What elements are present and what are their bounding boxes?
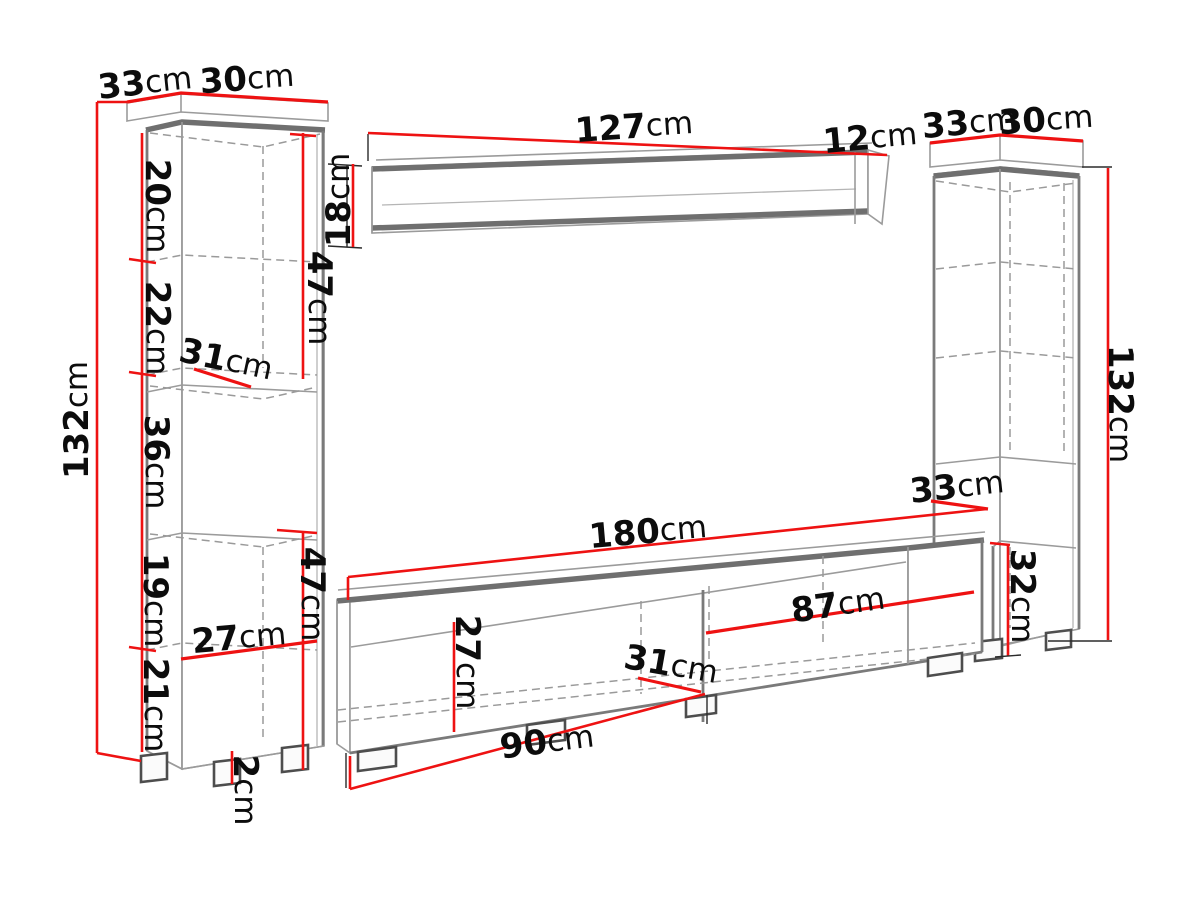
label-right-lower-door: 32cm (1002, 549, 1042, 644)
label-stand-inner-height: 27cm (447, 615, 487, 710)
furniture-dimension-diagram: 33cm 30cm 132cm 20cm 22cm 47cm 31cm 36cm… (0, 0, 1200, 899)
left-cabinet-foot (141, 753, 167, 782)
label-left-shelf-top: 20cm (137, 159, 177, 254)
label-shelf-height: 18cm (319, 153, 359, 248)
label-left-open-section: 36cm (136, 415, 176, 510)
label-left-shelf-fourth: 19cm (135, 553, 175, 648)
label-left-foot: 2cm (225, 755, 265, 826)
label-left-top-width: 30cm (198, 56, 295, 103)
label-right-height: 132cm (1100, 345, 1140, 463)
label-shelf-width: 127cm (574, 103, 695, 151)
label-shelf-end-depth: 12cm (821, 114, 919, 162)
label-right-top-width: 30cm (997, 97, 1094, 144)
label-stand-width: 180cm (587, 507, 708, 557)
tv-stand-foot (358, 747, 396, 771)
label-left-upper-door: 47cm (299, 251, 339, 346)
right-cabinet-foot (1046, 630, 1071, 650)
label-left-shelf-second: 22cm (137, 281, 177, 376)
label-left-lower-door: 47cm (292, 547, 332, 642)
tv-stand-foot (928, 653, 962, 676)
label-left-height: 132cm (57, 361, 97, 479)
label-left-shelf-bottom: 21cm (135, 658, 175, 753)
diagram-canvas: 33cm 30cm 132cm 20cm 22cm 47cm 31cm 36cm… (0, 0, 1200, 899)
